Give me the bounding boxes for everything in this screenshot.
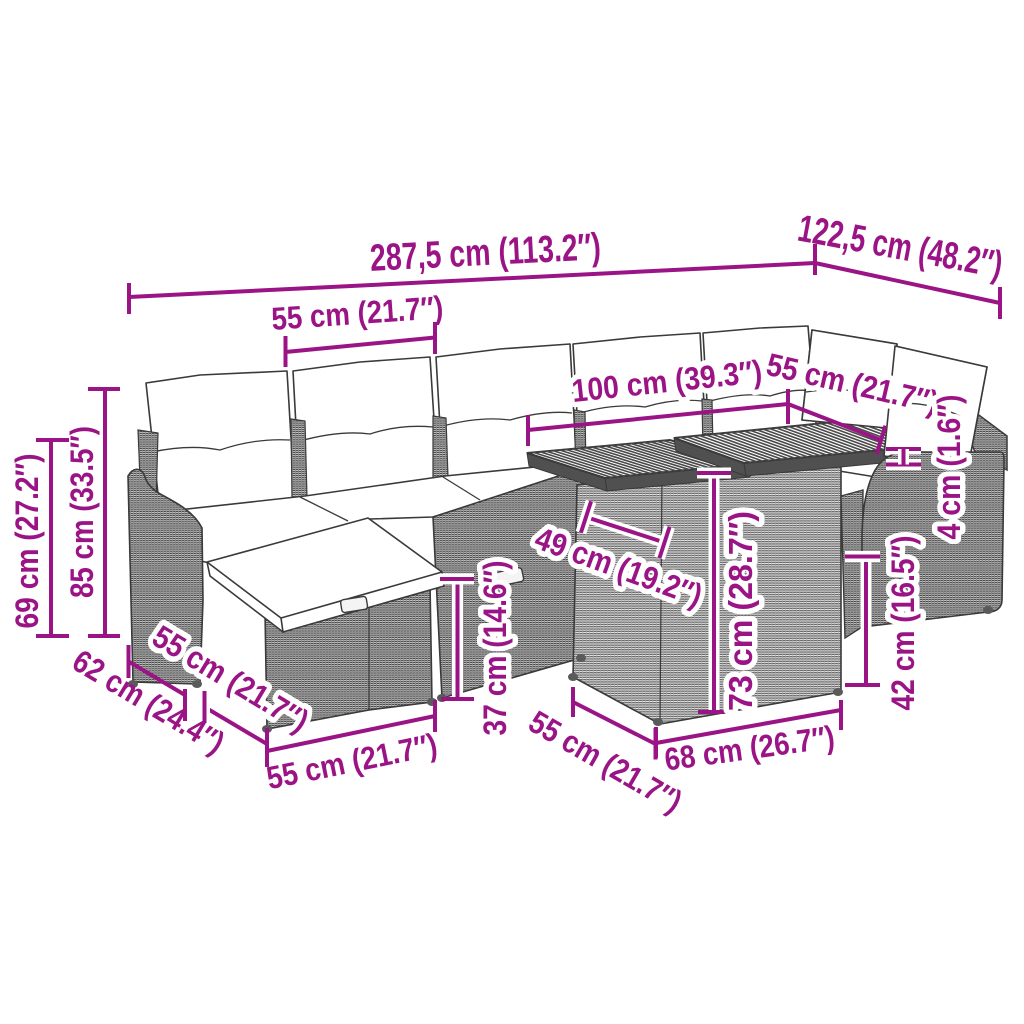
svg-text:69 cm (27.2″): 69 cm (27.2″) [9,454,45,629]
svg-text:42 cm (16.5″): 42 cm (16.5″) [885,536,921,711]
svg-text:73 cm (28.7″): 73 cm (28.7″) [722,511,759,711]
svg-text:85 cm (33.5″): 85 cm (33.5″) [64,426,100,598]
svg-text:37 cm (14.6″): 37 cm (14.6″) [477,561,513,736]
svg-text:4 cm (1.6″): 4 cm (1.6″) [931,395,967,540]
